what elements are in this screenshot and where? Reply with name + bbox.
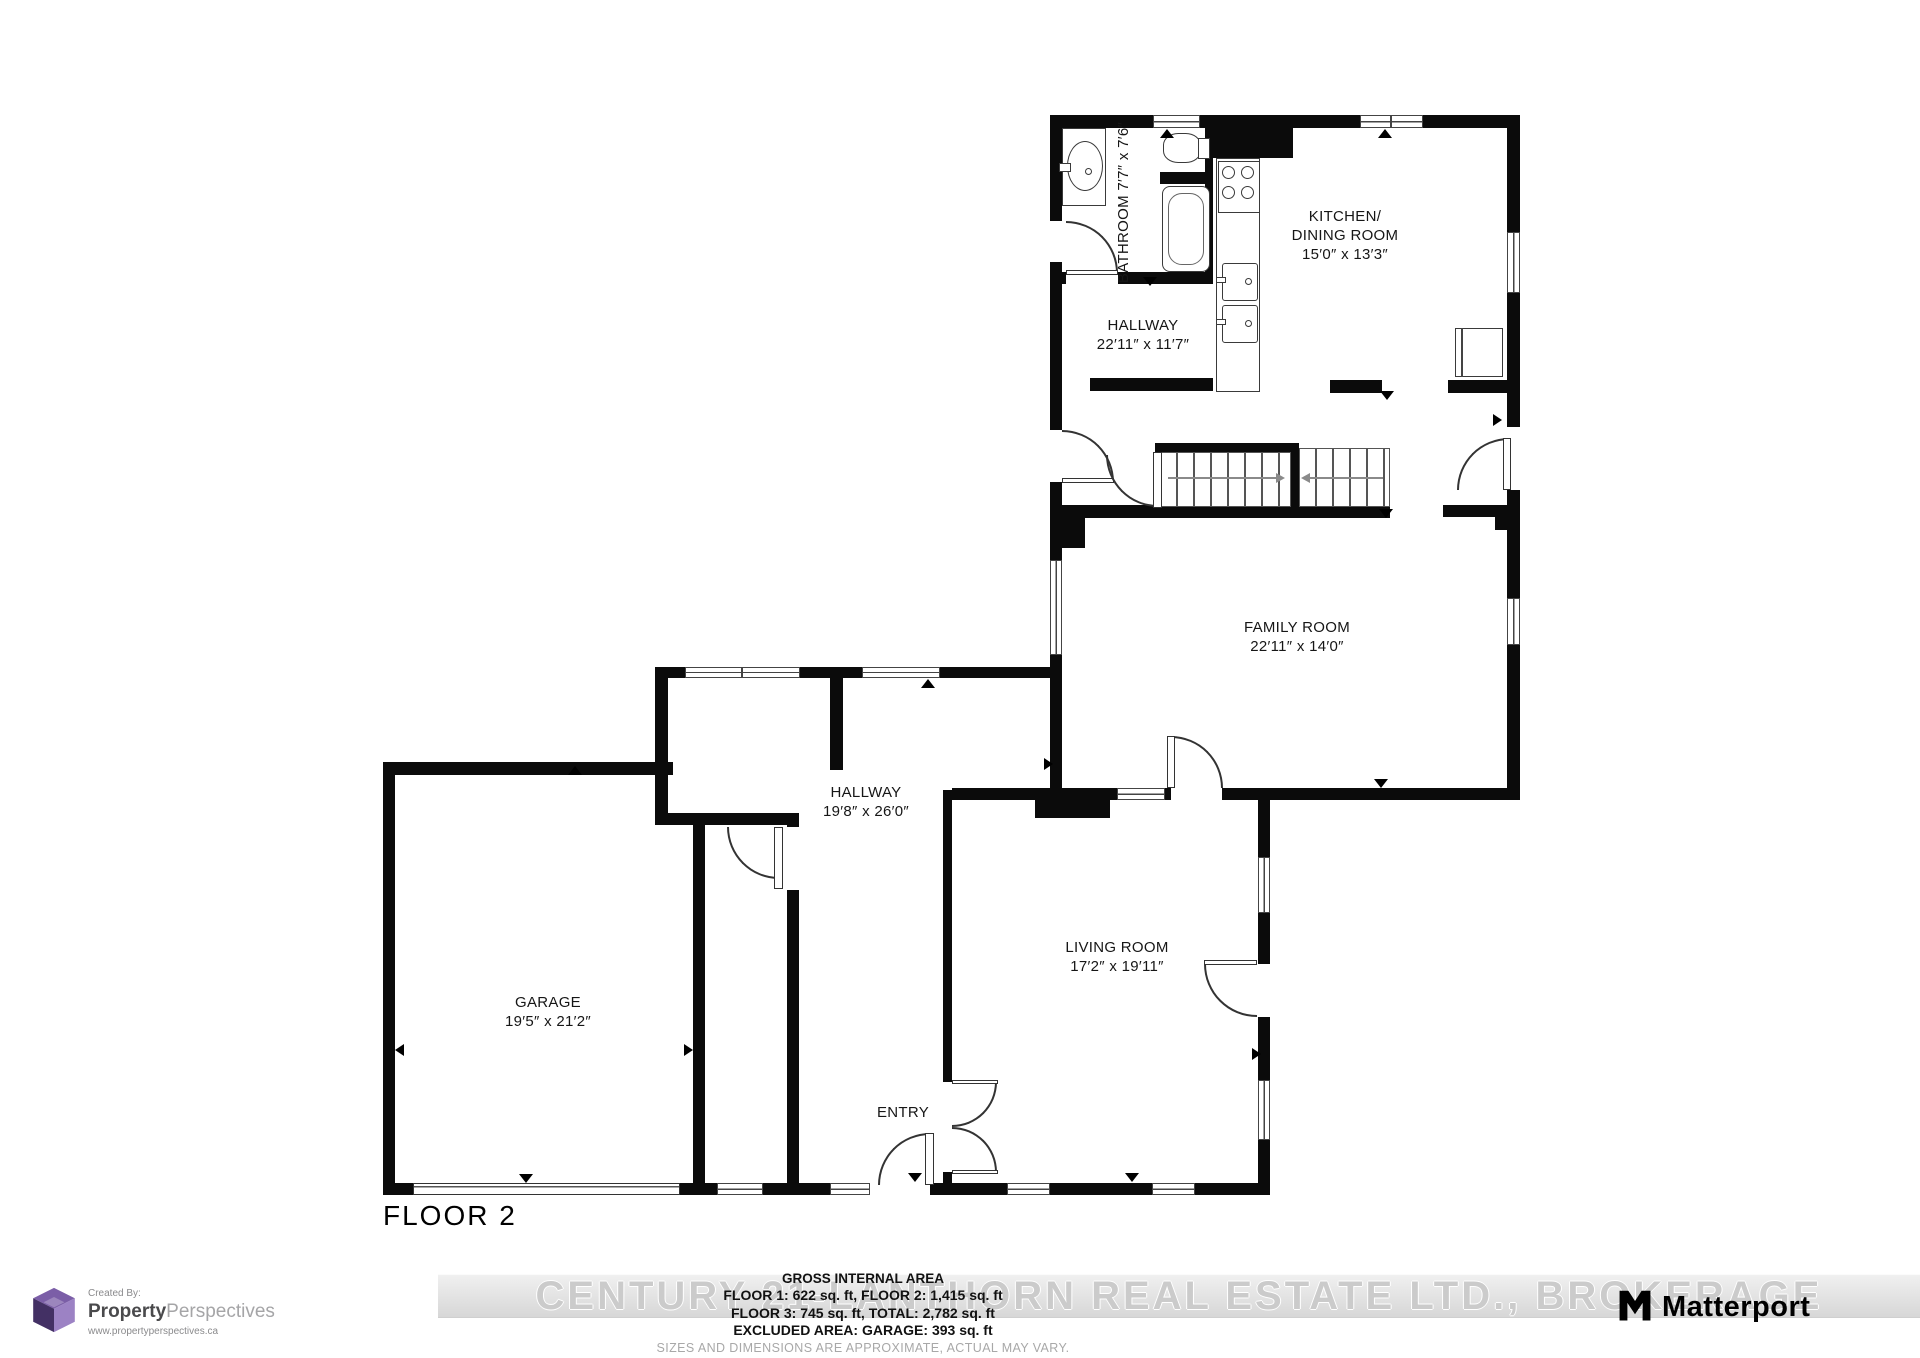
wall: [693, 813, 705, 1193]
room-label-entry: ENTRY: [853, 1103, 953, 1122]
wall: [1200, 115, 1360, 128]
area-summary: GROSS INTERNAL AREA FLOOR 1: 622 sq. ft,…: [513, 1271, 1213, 1356]
wall: [655, 667, 668, 825]
appliance-door-line: [1461, 328, 1463, 377]
brand-url: www.propertyperspectives.ca: [88, 1326, 275, 1337]
opening-marker: [921, 679, 935, 688]
room-name: DINING ROOM: [1245, 226, 1445, 245]
matterport-icon: [1616, 1286, 1654, 1329]
room-label-hallway-upper: HALLWAY 22′11″ x 11′7″: [1043, 316, 1243, 354]
stairs-direction-line: [1168, 477, 1276, 479]
opening-marker: [908, 1173, 922, 1182]
window-divider: [1390, 115, 1392, 128]
door-arc-closet: [727, 827, 779, 879]
room-name: GARAGE: [448, 993, 648, 1012]
wall: [1050, 272, 1066, 284]
window: [1507, 598, 1520, 645]
garage-door: [413, 1183, 680, 1195]
opening-marker: [1379, 509, 1393, 518]
room-name: HALLWAY: [766, 783, 966, 802]
door-arc-landing-right: [1457, 438, 1509, 490]
wall: [763, 1183, 830, 1195]
stove-burner: [1241, 166, 1254, 179]
sink-drain: [1245, 320, 1252, 327]
door-leaf: [1153, 452, 1162, 508]
wall: [1050, 1183, 1152, 1195]
sink-faucet: [1216, 277, 1226, 283]
opening-marker: [1493, 414, 1502, 426]
window: [1258, 1080, 1270, 1140]
area-line: FLOOR 1: 622 sq. ft, FLOOR 2: 1,415 sq. …: [513, 1287, 1213, 1305]
area-disclaimer: SIZES AND DIMENSIONS ARE APPROXIMATE, AC…: [513, 1340, 1213, 1356]
wall: [1258, 913, 1270, 964]
staircase-up: [1160, 452, 1291, 507]
kitchen-sink: [1222, 263, 1258, 301]
wall: [1448, 380, 1520, 393]
property-perspectives-logo: Created By: PropertyPerspectives www.pro…: [28, 1284, 275, 1341]
window: [1007, 1183, 1050, 1195]
opening-marker: [1380, 391, 1394, 400]
opening-marker: [395, 1044, 404, 1056]
wall: [1258, 800, 1270, 857]
window: [1258, 857, 1270, 913]
door-leaf: [1062, 478, 1114, 483]
window: [862, 667, 940, 678]
room-dimensions: 17′2″ x 19′11″: [1017, 957, 1217, 976]
wall: [383, 762, 395, 1193]
wall: [1507, 645, 1520, 800]
chimney-block: [1035, 788, 1110, 818]
wall: [1423, 115, 1520, 128]
opening-marker: [1378, 129, 1392, 138]
stove-burner: [1241, 186, 1254, 199]
floor-plan-page: BATHROOM 7′7″ x 7′6″ HALLWAY 22′11″ x 11…: [0, 0, 1920, 1358]
door-leaf: [1066, 270, 1118, 275]
window: [717, 1183, 763, 1195]
wall: [1507, 115, 1520, 232]
window-divider: [741, 667, 743, 678]
opening-marker: [1044, 758, 1053, 770]
opening-marker: [684, 1044, 693, 1056]
room-name: KITCHEN/: [1245, 207, 1445, 226]
window: [1117, 788, 1165, 800]
room-name: LIVING ROOM: [1017, 938, 1217, 957]
room-dimensions: 19′5″ x 21′2″: [448, 1012, 648, 1031]
property-perspectives-icon: [28, 1284, 80, 1341]
opening-marker: [1125, 1173, 1139, 1182]
opening-marker: [1252, 1048, 1261, 1060]
room-label-garage: GARAGE 19′5″ x 21′2″: [448, 993, 648, 1031]
door-arc-entry: [878, 1133, 930, 1185]
door-leaf: [774, 827, 783, 889]
wall: [1330, 380, 1382, 393]
area-title: GROSS INTERNAL AREA: [513, 1271, 1213, 1287]
stairs-arrow-right: [1276, 473, 1285, 483]
wall: [392, 762, 673, 775]
door-leaf: [952, 1170, 998, 1174]
stairs-arrow-left: [1301, 473, 1310, 483]
opening-marker: [1374, 779, 1388, 788]
opening-marker: [519, 1174, 533, 1183]
wall: [1222, 788, 1520, 800]
stove-burner: [1222, 186, 1235, 199]
wall: [940, 667, 1062, 678]
stairs-direction-line: [1310, 477, 1383, 479]
wall: [1507, 293, 1520, 427]
wall: [383, 1183, 413, 1195]
room-label-family-room: FAMILY ROOM 22′11″ x 14′0″: [1197, 618, 1397, 656]
wall: [1090, 378, 1213, 391]
created-by-label: Created By:: [88, 1288, 275, 1299]
wall: [1165, 788, 1171, 800]
room-name: HALLWAY: [1043, 316, 1243, 335]
wall: [930, 1183, 1007, 1195]
matterport-wordmark: Matterport: [1662, 1291, 1810, 1324]
area-line: EXCLUDED AREA: GARAGE: 393 sq. ft: [513, 1322, 1213, 1340]
opening-marker: [1160, 129, 1174, 138]
toilet-tank: [1198, 138, 1210, 159]
window: [1050, 560, 1062, 655]
brand-name-light: Perspectives: [166, 1301, 275, 1322]
opening-marker: [1143, 277, 1157, 286]
french-door-lower: [952, 1127, 997, 1172]
wall: [943, 790, 952, 1082]
room-dimensions: 7′7″ x 7′6″: [1115, 122, 1132, 191]
door-leaf: [952, 1080, 998, 1084]
room-name: FAMILY ROOM: [1197, 618, 1397, 637]
door-arc-family-room: [1171, 736, 1223, 788]
window: [1153, 115, 1200, 128]
opening-marker: [568, 766, 582, 775]
wall: [1050, 115, 1153, 128]
room-dimensions: 22′11″ x 14′0″: [1197, 637, 1397, 656]
floor-title: FLOOR 2: [383, 1200, 517, 1232]
stove-burner: [1222, 166, 1235, 179]
wall: [1258, 1140, 1270, 1195]
wall: [680, 1183, 717, 1195]
door-leaf: [1503, 438, 1511, 490]
window: [1507, 232, 1520, 293]
room-label-living-room: LIVING ROOM 17′2″ x 19′11″: [1017, 938, 1217, 976]
french-door-upper: [952, 1082, 997, 1127]
wall: [1291, 443, 1299, 517]
room-label-hallway-lower: HALLWAY 19′8″ x 26′0″: [766, 783, 966, 821]
room-dimensions: 22′11″ x 11′7″: [1043, 335, 1243, 354]
wall-notch: [1062, 518, 1085, 548]
room-name: ENTRY: [853, 1103, 953, 1122]
brand-name-bold: Property: [88, 1301, 166, 1322]
window: [1152, 1183, 1195, 1195]
area-line: FLOOR 3: 745 sq. ft, TOTAL: 2,782 sq. ft: [513, 1305, 1213, 1323]
room-name: BATHROOM: [1115, 195, 1132, 283]
door-arc-stairs: [1106, 455, 1158, 507]
door-leaf: [1167, 736, 1175, 788]
room-label-kitchen-dining: KITCHEN/ DINING ROOM 15′0″ x 13′3″: [1245, 207, 1445, 264]
wall: [1050, 482, 1062, 560]
refrigerator-block: [1213, 128, 1293, 158]
sink-drain: [1245, 278, 1252, 285]
room-dimensions: 19′8″ x 26′0″: [766, 802, 966, 821]
window: [830, 1183, 870, 1195]
room-dimensions: 15′0″ x 13′3″: [1245, 245, 1445, 264]
wall: [800, 667, 862, 678]
wall: [787, 890, 799, 1193]
wall: [830, 678, 843, 770]
room-label-bathroom: BATHROOM 7′7″ x 7′6″: [1066, 140, 1181, 265]
wall-notch: [1495, 505, 1520, 530]
door-leaf: [925, 1133, 934, 1185]
matterport-logo: Matterport: [1616, 1286, 1810, 1329]
